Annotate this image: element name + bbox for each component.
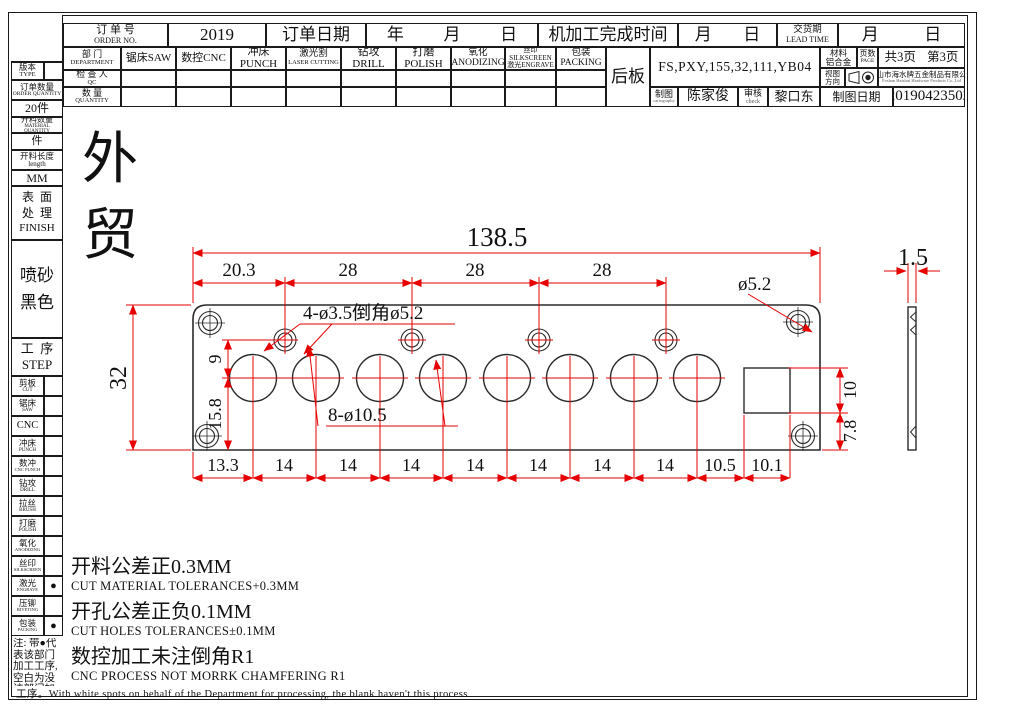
step-mark-cut xyxy=(44,376,63,396)
company-name: 佛山市海水牌五金制品有限公司 Foshan Haishui Hardware P… xyxy=(878,68,965,87)
step-mark-cnc-punch xyxy=(44,456,63,476)
projection-symbol-icon xyxy=(847,70,877,85)
version-label: 版本 TYPE xyxy=(11,62,44,80)
drawing-sheet: 138.5 20.3 28 28 28 ø5.2 4-ø3.5倒角ø5.2 8-… xyxy=(0,0,1019,719)
svg-text:7.8: 7.8 xyxy=(840,420,860,443)
footer-note: 工序。With white spots on behalf of the Dep… xyxy=(16,686,816,701)
dept-polish: 打磨POLISH xyxy=(396,47,451,70)
order-date-label: 订单日期 xyxy=(266,23,366,47)
finish-value: 喷砂 黑色 xyxy=(11,240,63,338)
svg-text:10.5: 10.5 xyxy=(704,455,736,475)
material-label: 材料 铝合金 xyxy=(820,47,857,68)
product-code: FS,PXY,155,32,111,YB04 xyxy=(650,47,820,87)
projection-symbol-cell xyxy=(845,68,878,87)
dim-total-width: 138.5 xyxy=(467,222,528,252)
step-label-silkscreen: 丝印SILKSCREEN xyxy=(11,556,44,576)
drawn-by: 陈家俊 xyxy=(678,87,738,107)
small-holes xyxy=(274,329,677,351)
step-mark-riveting xyxy=(44,596,63,616)
drawn-label: 制图 cartography xyxy=(650,87,678,107)
order-no-label: 订 单 号 ORDER NO. xyxy=(63,23,168,47)
svg-text:14: 14 xyxy=(402,455,420,475)
quantity-label: 数 量 QUANTITY xyxy=(63,87,121,107)
step-mark-brush xyxy=(44,496,63,516)
qc-cell xyxy=(341,70,396,87)
step-header: 工 序 STEP xyxy=(11,338,63,376)
qc-cell xyxy=(451,70,505,87)
qc-cell xyxy=(505,70,556,87)
version-value xyxy=(44,62,63,80)
step-mark-polish xyxy=(44,516,63,536)
dimension-lines xyxy=(126,247,940,478)
svg-text:28: 28 xyxy=(466,260,485,281)
side-view xyxy=(908,307,916,450)
dept-laser-cutting: 激光割 LASER CUTTING xyxy=(286,47,341,70)
material-qty-value: 件 xyxy=(11,133,63,150)
step-mark-saw xyxy=(44,396,63,416)
note-en: CNC PROCESS NOT MORRK CHAMFERING R1 xyxy=(71,670,471,684)
note-cn: 开料公差正0.3MM xyxy=(71,556,471,578)
note-cn: 开孔公差正负0.1MM xyxy=(71,601,471,623)
svg-text:10.1: 10.1 xyxy=(751,455,783,475)
pages-label: 页数 PAGE xyxy=(857,47,878,68)
drawing-date-label: 制图日期 xyxy=(820,87,893,107)
dept-saw: 锯床SAW xyxy=(121,47,176,70)
order-qty-label: 订单数量 ORDER QUANTITY xyxy=(11,80,63,100)
dim-corner-hole: ø5.2 xyxy=(738,274,771,295)
department-label: 部 门 DEPARTMENT xyxy=(63,47,121,70)
machining-done-label: 机加工完成时间 xyxy=(538,23,678,47)
dept-anodizing: 氧化ANODIZING xyxy=(451,47,505,70)
dim-thickness: 1.5 xyxy=(898,245,928,271)
svg-text:15.8: 15.8 xyxy=(205,398,225,430)
qty-cell xyxy=(121,87,176,107)
tolerance-notes: 开料公差正0.3MM CUT MATERIAL TOLERANCES+0.3MM… xyxy=(71,556,471,690)
step-label-engrave: 激光ENGRAVE xyxy=(11,576,44,596)
qc-cell xyxy=(396,70,451,87)
step-label-cnc-punch: 数冲CNC PUNCH xyxy=(11,456,44,476)
qc-cell xyxy=(286,70,341,87)
step-label-brush: 拉丝BRUSH xyxy=(11,496,44,516)
qty-cell xyxy=(286,87,341,107)
svg-text:20.3: 20.3 xyxy=(222,260,255,281)
qc-cell xyxy=(556,70,606,87)
step-label-riveting: 压铆RIVETING xyxy=(11,596,44,616)
step-label-cnc: CNC xyxy=(11,416,44,436)
svg-text:14: 14 xyxy=(339,455,357,475)
qty-cell xyxy=(341,87,396,107)
step-mark-cnc xyxy=(44,416,63,436)
svg-text:28: 28 xyxy=(593,260,612,281)
svg-text:14: 14 xyxy=(529,455,547,475)
dept-silkscreen-engrave: 丝印SILKSCREEN 激光ENGRAVE xyxy=(505,47,556,70)
svg-text:14: 14 xyxy=(656,455,674,475)
dept-drill: 钻攻DRILL xyxy=(341,47,396,70)
check-label: 审核 check xyxy=(738,87,768,107)
step-label-punch: 冲床PUNCH xyxy=(11,436,44,456)
checked-by: 黎口东 xyxy=(768,87,820,107)
svg-text:13.3: 13.3 xyxy=(207,455,239,475)
qty-cell xyxy=(231,87,286,107)
dept-packing: 包装PACKING xyxy=(556,47,606,70)
pages-value: 共3页 第3页 xyxy=(878,47,965,68)
sidebar-empty-top xyxy=(11,15,63,62)
dept-punch: 冲床PUNCH xyxy=(231,47,286,70)
order-no-value: 2019 xyxy=(168,23,266,47)
order-qty-value: 20件 xyxy=(11,100,63,117)
svg-text:14: 14 xyxy=(275,455,293,475)
step-mark-anodizing xyxy=(44,536,63,556)
step-label-packing: 包装PACKING xyxy=(11,616,44,636)
qc-cell xyxy=(176,70,231,87)
lead-time-label: 交货期 LEAD TIME xyxy=(777,23,838,47)
order-date-value: 年 月 日 xyxy=(366,23,538,47)
machining-done-value: 月 日 xyxy=(678,23,777,47)
qty-cell xyxy=(176,87,231,107)
qty-cell xyxy=(396,87,451,107)
step-label-cut: 剪板CUT xyxy=(11,376,44,396)
sidebar-note: 注: 带●代表该部门加工工序, 空白为没该部门加工工序。 xyxy=(13,638,63,686)
view-direction-label: 视图 方向 xyxy=(820,68,845,87)
qty-cell xyxy=(505,87,556,107)
length-value: MM xyxy=(11,170,63,186)
qc-cell xyxy=(231,70,286,87)
svg-text:10: 10 xyxy=(840,381,860,399)
lead-time-value: 月 日 xyxy=(838,23,965,47)
part-name: 后板 xyxy=(606,47,650,107)
step-label-drill: 钻攻DRILL xyxy=(11,476,44,496)
length-label: 开料长度 length xyxy=(11,150,63,170)
svg-text:28: 28 xyxy=(339,260,358,281)
qty-cell xyxy=(451,87,505,107)
square-cutout xyxy=(744,368,790,413)
dept-cnc: 数控CNC xyxy=(176,47,231,70)
step-label-saw: 锯床SAW xyxy=(11,396,44,416)
step-label-anodizing: 氧化ANODIZING xyxy=(11,536,44,556)
step-mark-packing: ● xyxy=(44,616,63,636)
small-holes-note: 4-ø3.5倒角ø5.2 xyxy=(303,302,423,324)
svg-text:9: 9 xyxy=(205,355,225,364)
note-en: CUT HOLES TOLERANCES±0.1MM xyxy=(71,625,471,639)
big-holes-note: 8-ø10.5 xyxy=(328,405,387,426)
qc-cell xyxy=(121,70,176,87)
dim-height-total: 32 xyxy=(106,366,132,390)
qc-label: 检 查 人 QC xyxy=(63,70,121,87)
dimension-texts: 138.5 20.3 28 28 28 ø5.2 4-ø3.5倒角ø5.2 8-… xyxy=(106,222,928,475)
step-label-polish: 打磨POLISH xyxy=(11,516,44,536)
step-mark-engrave: ● xyxy=(44,576,63,596)
step-mark-drill xyxy=(44,476,63,496)
svg-text:14: 14 xyxy=(466,455,484,475)
note-en: CUT MATERIAL TOLERANCES+0.3MM xyxy=(71,580,471,594)
note-cn: 数控加工未注倒角R1 xyxy=(71,646,471,668)
drawing-date-value: 20190423502 xyxy=(893,87,965,107)
step-mark-silkscreen xyxy=(44,556,63,576)
svg-text:14: 14 xyxy=(593,455,611,475)
step-mark-punch xyxy=(44,436,63,456)
finish-label: 表 面 处 理 FINISH xyxy=(11,186,63,240)
material-qty-label: 开料数量 MATERIAL QUANTITY xyxy=(11,117,63,133)
qty-cell xyxy=(556,87,606,107)
trade-mark-text: 外贸 xyxy=(82,122,144,274)
